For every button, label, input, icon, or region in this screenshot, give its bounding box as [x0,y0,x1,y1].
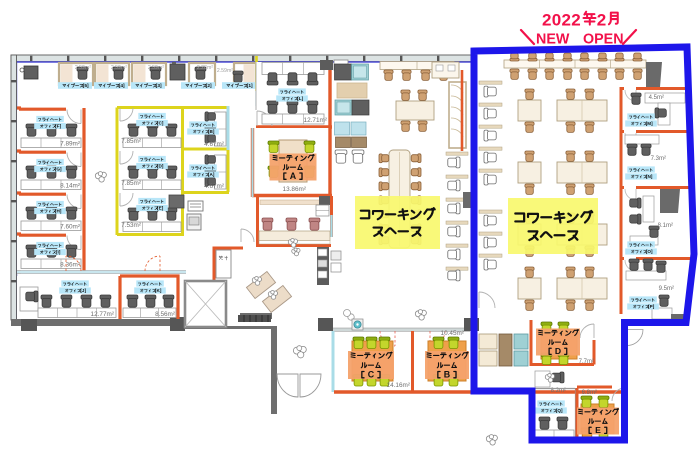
svg-text:2.59m²: 2.59m² [75,65,91,71]
svg-text:A: A [290,171,297,181]
svg-text:8.36m²: 8.36m² [60,262,80,269]
svg-text:[1]: [1] [247,83,253,89]
svg-text:8.1m²: 8.1m² [658,223,673,229]
svg-text:C: C [368,370,375,380]
svg-text:NEW: NEW [536,32,570,48]
svg-text:[5]: [5] [83,83,89,89]
svg-text:7.3m²: 7.3m² [651,156,666,162]
svg-text:9.5m²: 9.5m² [659,286,674,292]
svg-text:[E]: [E] [157,206,164,211]
svg-text:[2]: [2] [206,83,212,89]
svg-text:7.7m²: 7.7m² [579,359,594,365]
svg-text:8.56m²: 8.56m² [155,311,175,318]
svg-text:[I]: [I] [56,250,61,255]
svg-text:6.8m²: 6.8m² [582,390,597,396]
svg-text:[3]: [3] [156,83,162,89]
svg-text:4.67m²: 4.67m² [204,183,224,190]
svg-text:OPEN: OPEN [583,32,624,48]
svg-text:4.5m²: 4.5m² [649,95,664,101]
svg-text:2.59m²: 2.59m² [148,65,164,71]
svg-text:[K]: [K] [155,288,162,293]
svg-text:[F]: [F] [55,124,61,129]
svg-text:7.53m²: 7.53m² [121,222,141,229]
svg-text:2022: 2022 [542,11,581,30]
svg-text:13.86m²: 13.86m² [283,186,306,193]
svg-text:12.71m²: 12.71m² [304,117,327,124]
svg-text:[O]: [O] [646,249,653,254]
svg-text:[H]: [H] [55,209,62,214]
svg-text:E: E [595,425,601,435]
svg-text:B: B [444,370,450,380]
svg-text:2.59m²: 2.59m² [217,68,233,74]
svg-text:14.16m²: 14.16m² [387,382,410,389]
svg-text:[B]: [B] [208,129,215,134]
svg-text:[N]: [N] [646,174,653,179]
svg-text:7.60m²: 7.60m² [60,224,80,231]
svg-text:2.59m²: 2.59m² [111,65,127,71]
svg-text:[L]: [L] [297,96,303,101]
svg-text:10.45m²: 10.45m² [441,330,464,337]
svg-text:7.89m²: 7.89m² [60,141,80,148]
svg-text:[C]: [C] [157,121,164,126]
svg-text:[4]: [4] [119,83,125,89]
svg-text:[A]: [A] [208,172,215,177]
svg-text:8.14m²: 8.14m² [60,183,80,190]
svg-text:4.67m²: 4.67m² [204,141,224,148]
svg-text:[D]: [D] [157,164,164,169]
svg-text:[G]: [G] [55,167,62,172]
svg-text:[Q]: [Q] [556,408,563,413]
svg-text:2.28m²: 2.28m² [197,65,213,71]
svg-text:2: 2 [597,11,606,30]
svg-text:[P]: [P] [648,304,655,309]
svg-text:7.85m²: 7.85m² [121,138,141,145]
svg-text:[J]: [J] [80,288,86,293]
svg-text:D: D [555,346,561,356]
svg-text:12.77m²: 12.77m² [91,311,114,318]
svg-text:[M]: [M] [646,121,653,126]
svg-text:7.85m²: 7.85m² [121,180,141,187]
